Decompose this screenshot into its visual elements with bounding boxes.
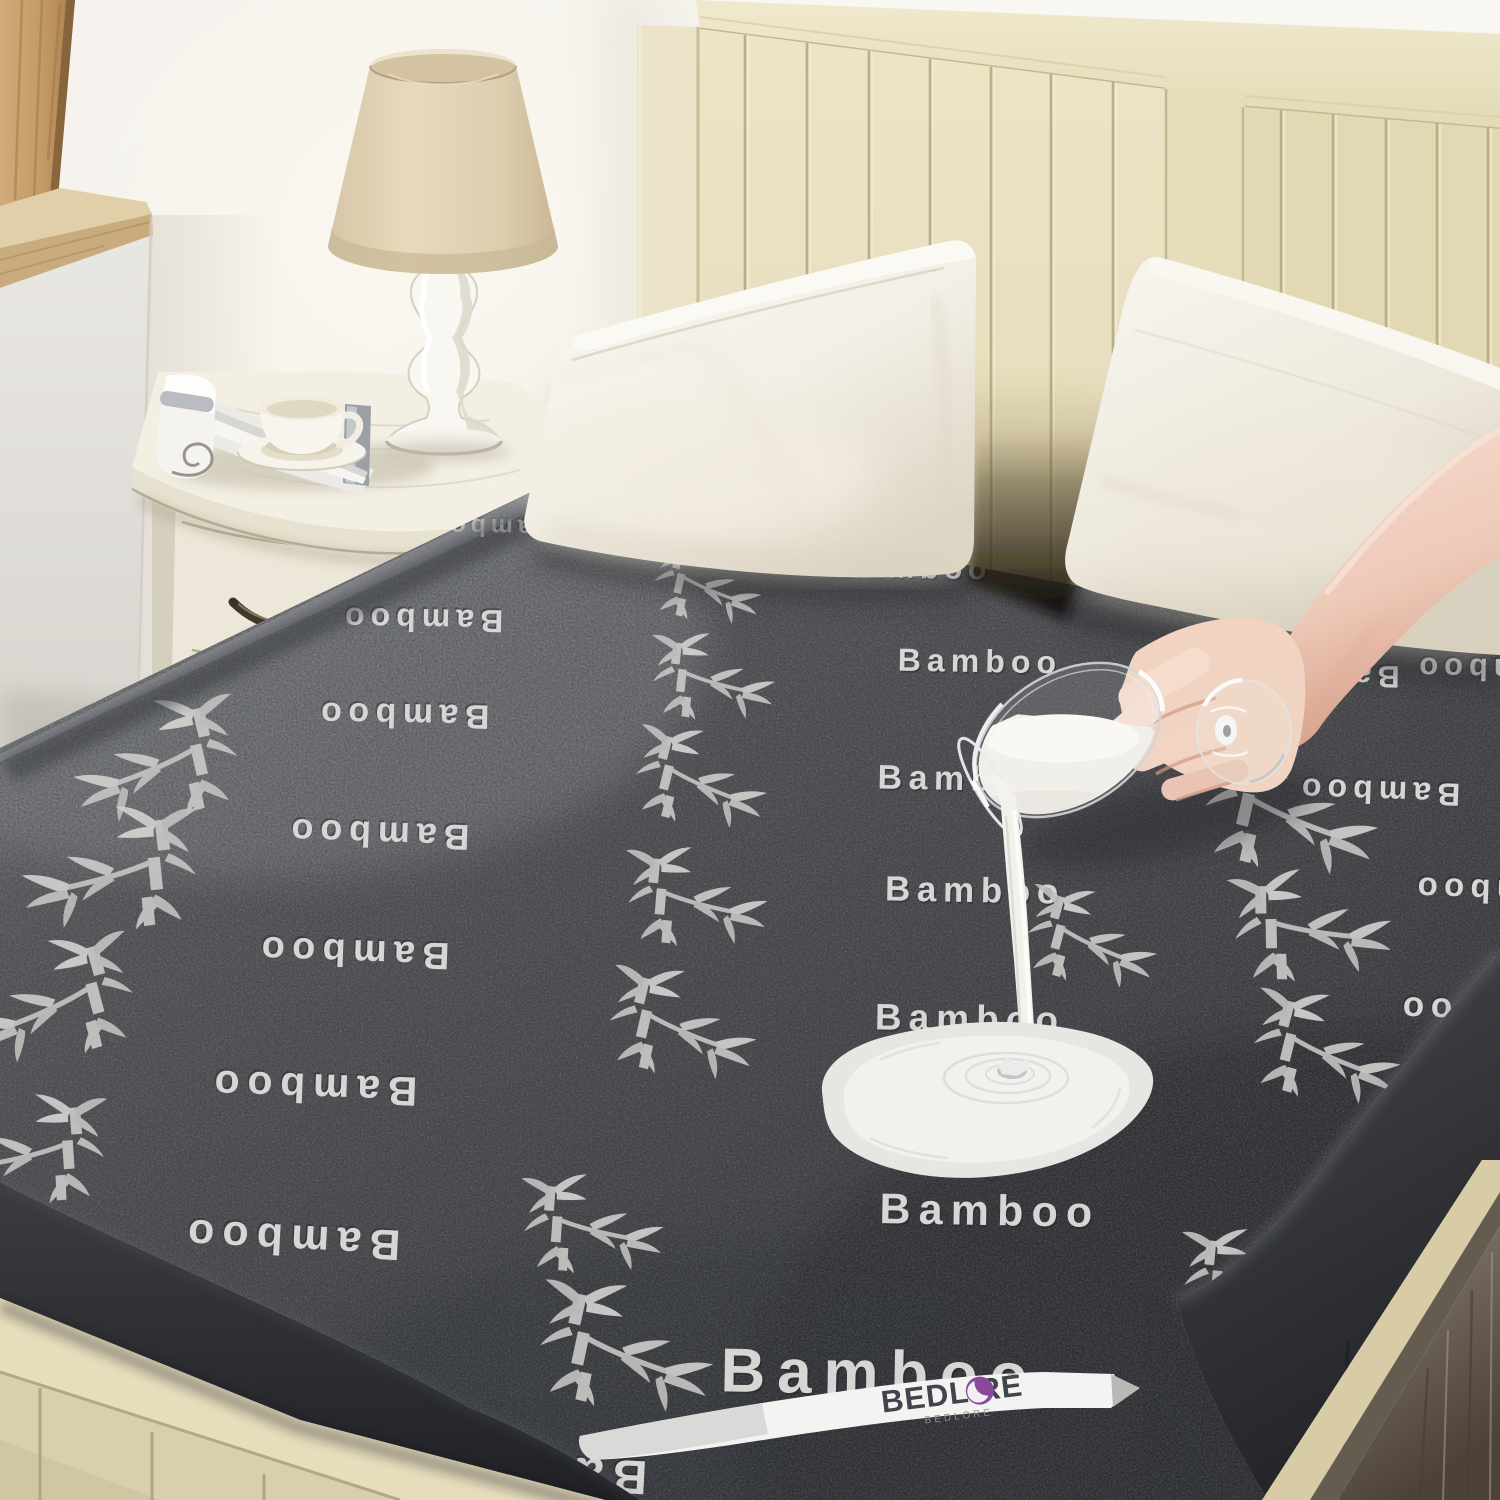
svg-text:Bamboo: Bamboo — [885, 869, 1066, 911]
svg-text:Bamboo: Bamboo — [879, 1185, 1101, 1237]
svg-text:Bamboo: Bamboo — [1411, 870, 1500, 913]
svg-text:Bamboo: Bamboo — [254, 928, 451, 977]
svg-text:Bamboo: Bamboo — [897, 642, 1062, 681]
svg-text:Bamboo: Bamboo — [314, 694, 489, 735]
svg-text:Bamboo: Bamboo — [206, 1061, 418, 1114]
svg-text:Bamboo: Bamboo — [284, 811, 470, 858]
